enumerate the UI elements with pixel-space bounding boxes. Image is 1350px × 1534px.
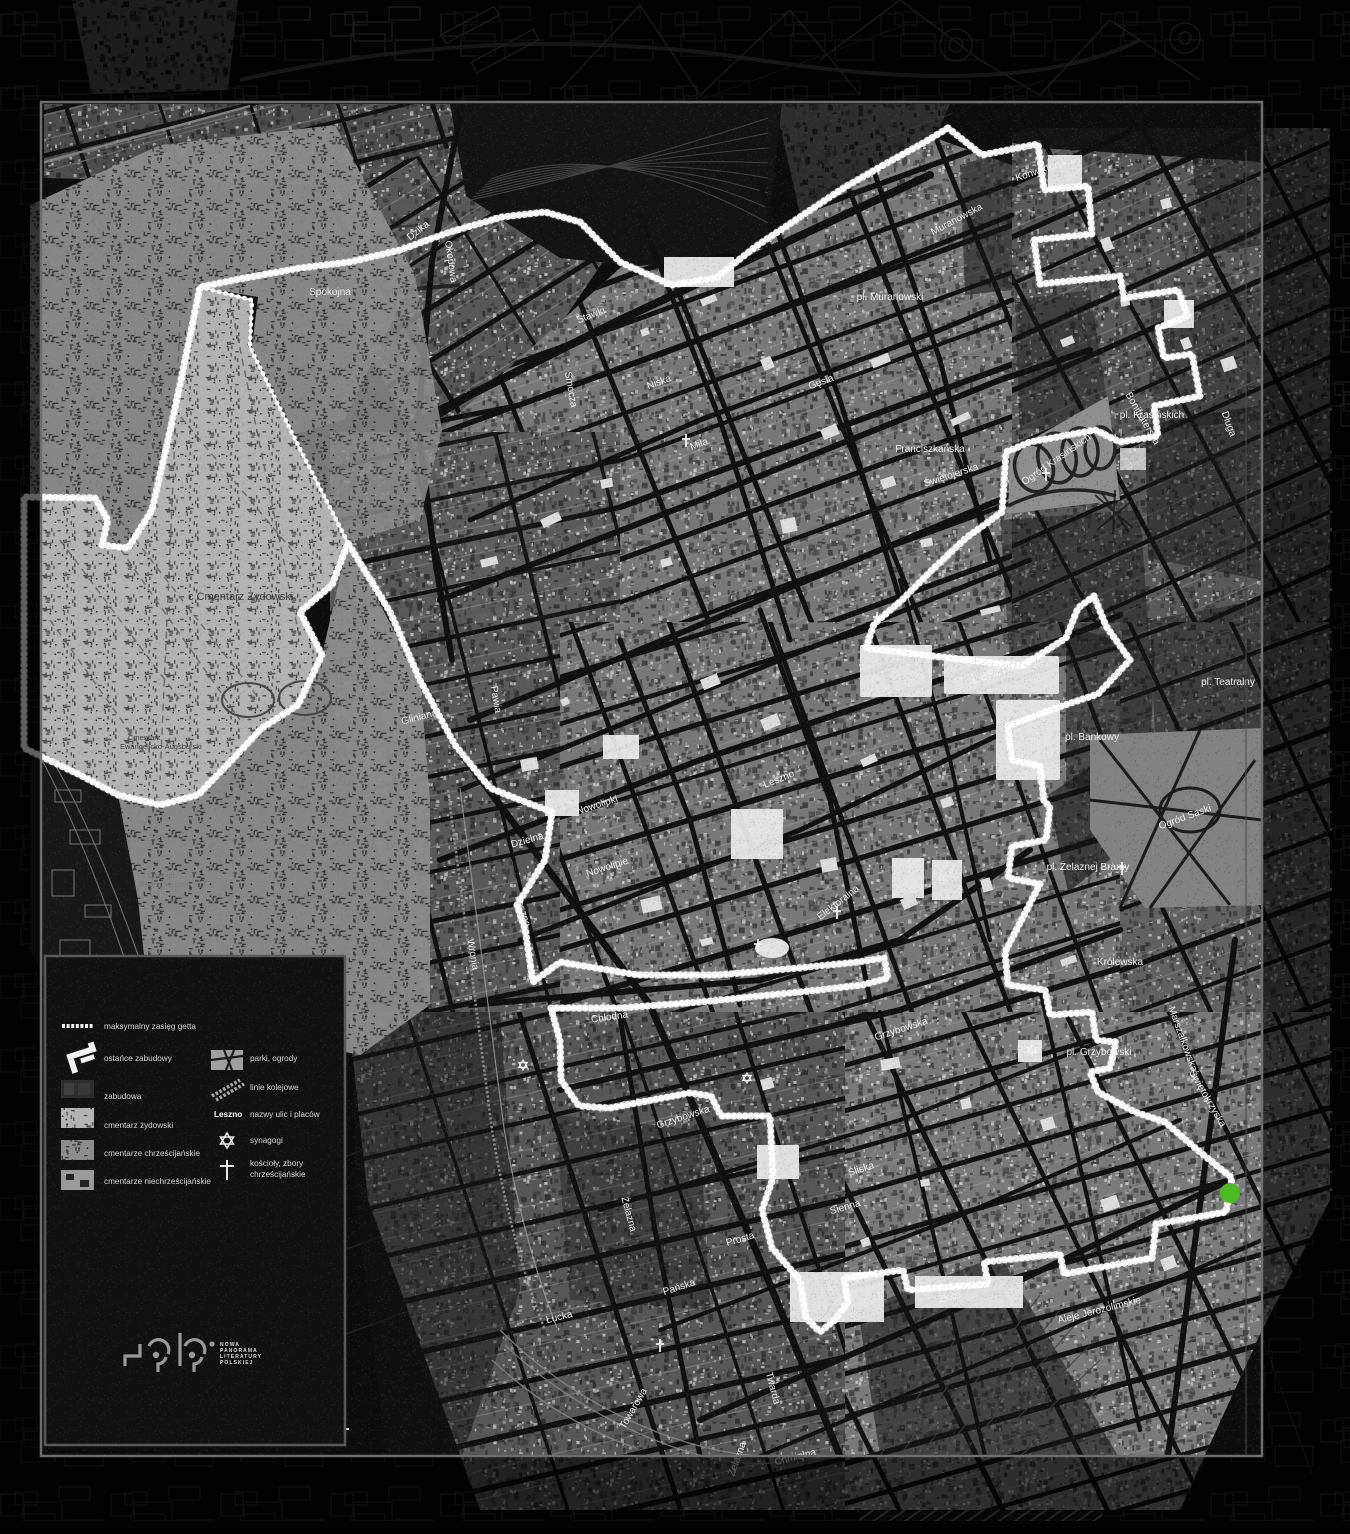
svg-text:nazwy ulic i placów: nazwy ulic i placów — [250, 1110, 320, 1119]
svg-text:synagogi: synagogi — [250, 1136, 283, 1145]
svg-text:zabudowa: zabudowa — [104, 1092, 142, 1101]
svg-text:parki, ogrody: parki, ogrody — [250, 1054, 298, 1063]
svg-text:cmentarze niechrześcijańskie: cmentarze niechrześcijańskie — [104, 1177, 211, 1186]
svg-text:ostańce zabudowy: ostańce zabudowy — [104, 1054, 173, 1063]
svg-text:maksymalny zasięg getta: maksymalny zasięg getta — [104, 1022, 196, 1031]
svg-text:linie kolejowe: linie kolejowe — [250, 1083, 299, 1092]
svg-text:cmentarz żydowski: cmentarz żydowski — [104, 1121, 173, 1130]
svg-text:kościoły, zbory: kościoły, zbory — [250, 1159, 304, 1168]
svg-text:cmentarze chrześcijańskie: cmentarze chrześcijańskie — [104, 1149, 200, 1158]
svg-text:chrześcijańskie: chrześcijańskie — [250, 1170, 306, 1179]
svg-text:POLSKIEJ: POLSKIEJ — [220, 1360, 254, 1366]
svg-text:Leszno: Leszno — [214, 1110, 242, 1119]
